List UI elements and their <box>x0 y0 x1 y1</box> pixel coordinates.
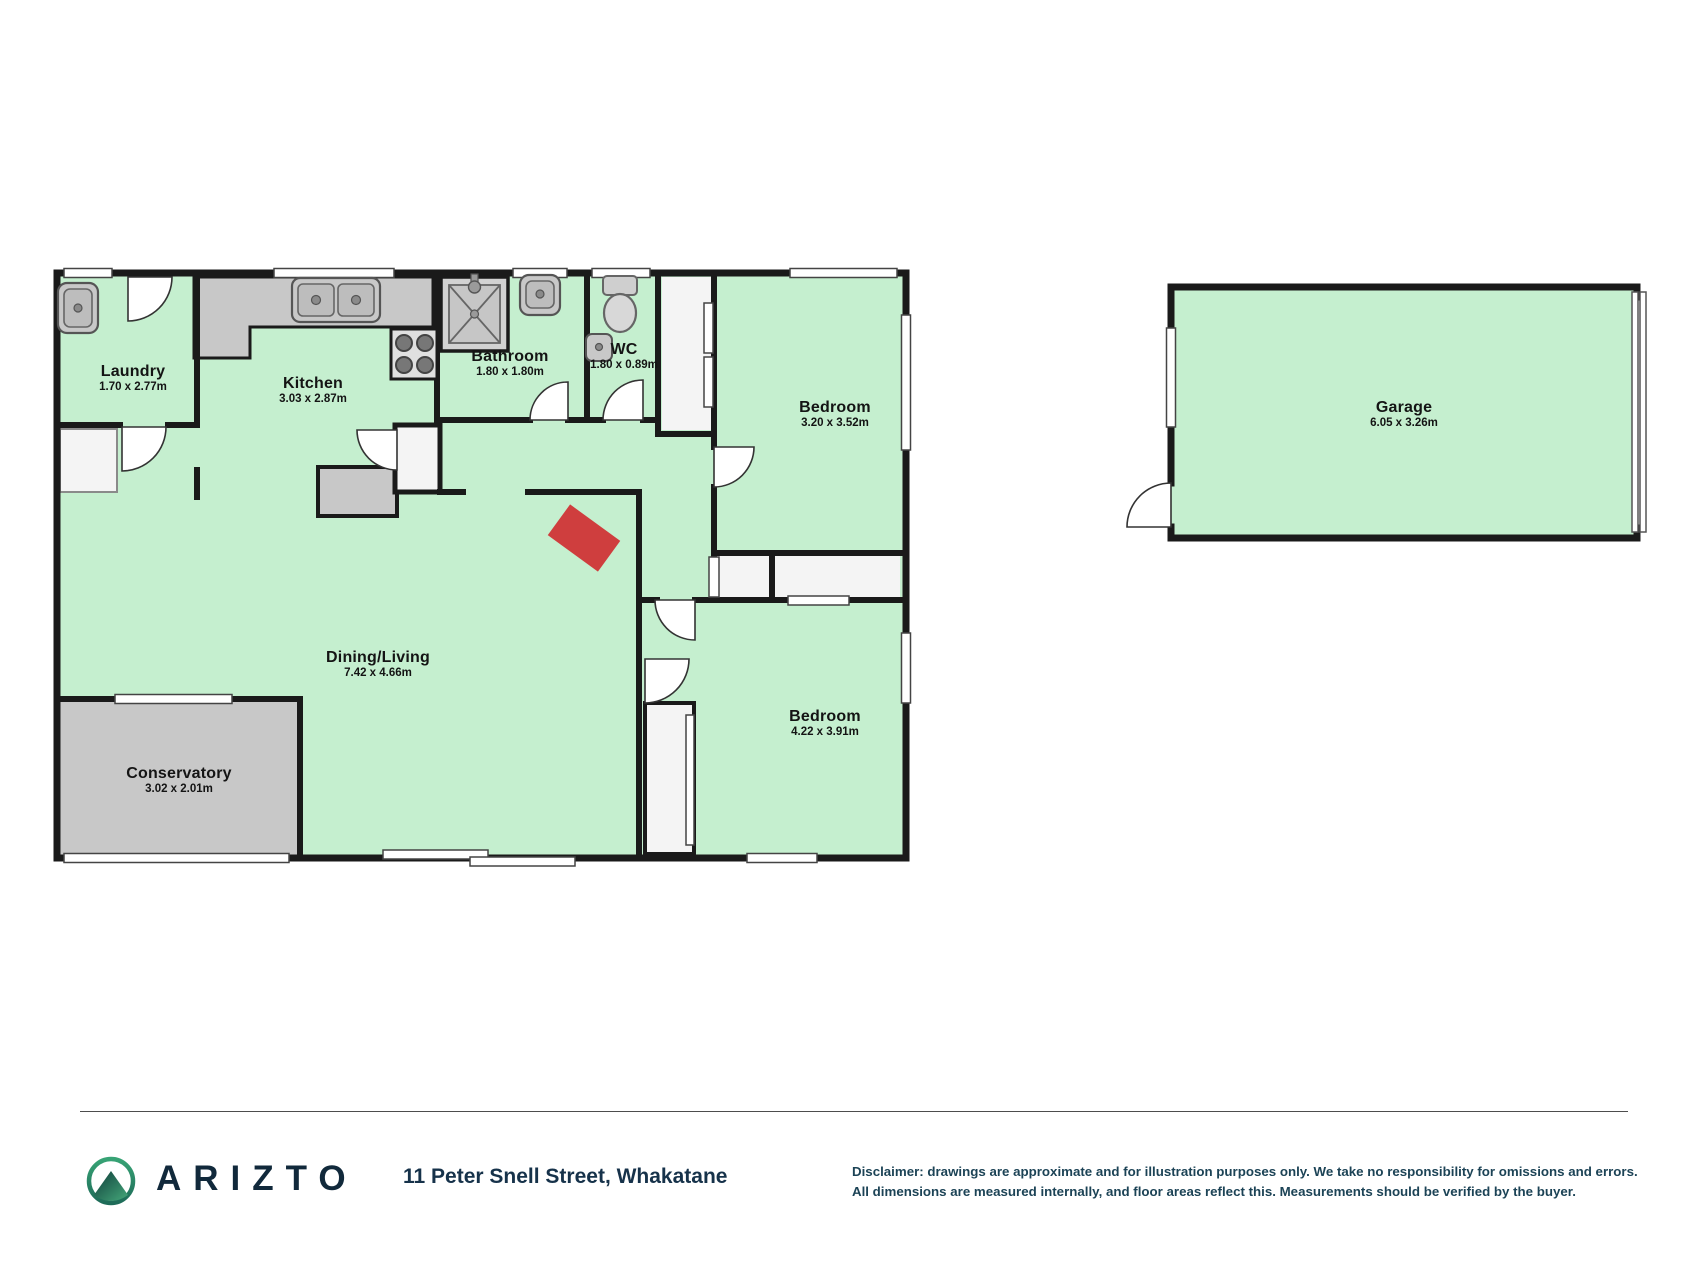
room-name: Kitchen <box>279 375 347 392</box>
stove <box>391 329 437 379</box>
room-dims: 3.20 x 3.52m <box>799 416 871 430</box>
living-slider-panel2 <box>470 857 575 866</box>
room-dims: 7.42 x 4.66m <box>326 666 430 680</box>
room-dims: 1.70 x 2.77m <box>99 380 167 394</box>
disclaimer-line-1: Disclaimer: drawings are approximate and… <box>852 1162 1652 1182</box>
conservatory-top-window <box>115 695 232 704</box>
room-name: Bedroom <box>799 399 871 416</box>
shower <box>441 274 508 351</box>
footer-divider <box>80 1111 1628 1112</box>
tall-closet-door <box>686 715 694 845</box>
bathroom-sink <box>520 275 560 315</box>
floorplan-drawing <box>0 0 1707 1280</box>
room-dims: 6.05 x 3.26m <box>1370 416 1438 430</box>
room-dims: 3.02 x 2.01m <box>126 782 232 796</box>
bedroom1-top-window <box>790 269 897 278</box>
garage-window <box>1167 328 1176 427</box>
disclaimer-line-2: All dimensions are measured internally, … <box>852 1182 1652 1202</box>
hall-closet-door-upper <box>704 303 713 353</box>
room-dims: 1.80 x 0.89m <box>590 358 658 372</box>
bedroom1-closet-door <box>709 557 719 597</box>
brand-wordmark: ARIZTO <box>156 1159 358 1199</box>
bedroom2-right-window <box>902 633 911 703</box>
garage-roller-door <box>1632 292 1646 532</box>
room-dims: 4.22 x 3.91m <box>789 725 861 739</box>
pantry-closet <box>395 425 440 492</box>
garage-side-door <box>1127 483 1171 527</box>
room-label-conservatory: Conservatory 3.02 x 2.01m <box>126 765 232 796</box>
bedroom1-closet <box>716 555 770 598</box>
wardrobe-slider <box>788 596 849 605</box>
room-name: WC <box>590 341 658 358</box>
room-dims: 1.80 x 1.80m <box>471 365 548 379</box>
room-name: Bathroom <box>471 348 548 365</box>
room-name: Dining/Living <box>326 649 430 666</box>
toilet <box>603 276 637 332</box>
room-label-bedroom1: Bedroom 3.20 x 3.52m <box>799 399 871 430</box>
arizto-logo-icon <box>86 1156 136 1206</box>
room-label-bedroom2: Bedroom 4.22 x 3.91m <box>789 708 861 739</box>
room-name: Bedroom <box>789 708 861 725</box>
hall-closet-door-lower <box>704 357 713 407</box>
laundry-sink <box>58 283 98 333</box>
bedroom2-bottom-window <box>747 854 817 863</box>
room-label-bathroom: Bathroom 1.80 x 1.80m <box>471 348 548 379</box>
disclaimer-text: Disclaimer: drawings are approximate and… <box>852 1162 1652 1201</box>
room-name: Laundry <box>99 363 167 380</box>
room-name: Garage <box>1370 399 1438 416</box>
room-label-kitchen: Kitchen 3.03 x 2.87m <box>279 375 347 406</box>
room-name: Conservatory <box>126 765 232 782</box>
entry-closet <box>60 429 117 492</box>
kitchen-sink <box>292 278 380 322</box>
room-label-garage: Garage 6.05 x 3.26m <box>1370 399 1438 430</box>
room-label-dining-living: Dining/Living 7.42 x 4.66m <box>326 649 430 680</box>
floorplan-page: Laundry 1.70 x 2.77m Kitchen 3.03 x 2.87… <box>0 0 1707 1280</box>
kitchen-cupboard <box>318 467 397 516</box>
room-label-laundry: Laundry 1.70 x 2.77m <box>99 363 167 394</box>
laundry-window <box>64 269 112 278</box>
conservatory-bottom-window <box>64 854 289 863</box>
room-dims: 3.03 x 2.87m <box>279 392 347 406</box>
bedroom2-wardrobe <box>774 555 900 598</box>
room-label-wc: WC 1.80 x 0.89m <box>590 341 658 372</box>
bedroom1-right-window <box>902 315 911 450</box>
property-address: 11 Peter Snell Street, Whakatane <box>403 1165 727 1189</box>
kitchen-window <box>274 269 394 278</box>
